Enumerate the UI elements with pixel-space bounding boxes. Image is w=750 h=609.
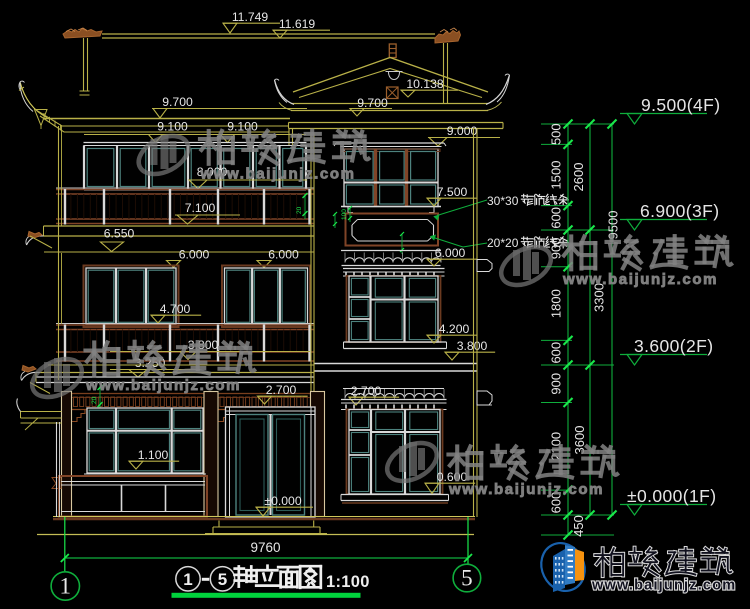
svg-text:5: 5 [218, 570, 227, 589]
svg-text:www.baijunjz.com: www.baijunjz.com [448, 481, 604, 498]
svg-text:30*30: 30*30 [487, 194, 519, 208]
svg-text:3.800: 3.800 [457, 339, 488, 353]
svg-text:20: 20 [91, 396, 98, 404]
svg-text:500: 500 [549, 123, 564, 145]
svg-text:4.200: 4.200 [439, 322, 470, 336]
svg-text:1: 1 [60, 574, 72, 599]
svg-text:www.baijunjz.com: www.baijunjz.com [85, 377, 241, 394]
svg-text:11.749: 11.749 [232, 10, 269, 24]
svg-text:9.000: 9.000 [447, 124, 478, 138]
svg-text:9.700: 9.700 [162, 95, 193, 109]
svg-text:www.baijunjz.com: www.baijunjz.com [200, 166, 356, 183]
svg-text:100: 100 [341, 209, 348, 220]
svg-text:5: 5 [461, 566, 473, 591]
svg-text:2.700: 2.700 [266, 383, 297, 397]
svg-text:9.700: 9.700 [357, 96, 388, 110]
svg-text:1800: 1800 [549, 289, 564, 318]
svg-text:2.700: 2.700 [351, 384, 382, 398]
svg-text:www.baijunjz.com: www.baijunjz.com [562, 271, 718, 288]
svg-text:±0.000(1F): ±0.000(1F) [627, 486, 716, 506]
svg-text:4.700: 4.700 [160, 302, 191, 316]
svg-text:900: 900 [549, 373, 564, 395]
svg-text:9.100: 9.100 [157, 120, 188, 134]
svg-text:600: 600 [549, 342, 564, 364]
svg-text:20*20: 20*20 [487, 236, 519, 250]
svg-text:450: 450 [571, 515, 586, 537]
svg-text:2600: 2600 [571, 163, 586, 192]
svg-text:7.500: 7.500 [437, 185, 468, 199]
svg-text:6.000: 6.000 [179, 248, 210, 262]
svg-text:9.500(4F): 9.500(4F) [641, 95, 720, 115]
svg-text:7.100: 7.100 [185, 201, 216, 215]
svg-text:6.000: 6.000 [268, 248, 299, 262]
svg-text:600: 600 [549, 207, 564, 229]
svg-text:9.100: 9.100 [227, 120, 258, 134]
svg-text:6.000: 6.000 [435, 246, 466, 260]
svg-text:10.138: 10.138 [406, 77, 443, 91]
svg-text:3.600(2F): 3.600(2F) [634, 336, 713, 356]
svg-text:20: 20 [296, 206, 303, 214]
svg-text:www.baijunjz.com: www.baijunjz.com [591, 578, 736, 594]
svg-text:1500: 1500 [549, 161, 564, 190]
svg-text:6.900(3F): 6.900(3F) [640, 201, 719, 221]
svg-text:1:100: 1:100 [326, 573, 370, 591]
svg-text:±0.000: ±0.000 [264, 494, 301, 508]
svg-text:6.550: 6.550 [104, 227, 135, 241]
svg-text:11.619: 11.619 [279, 17, 316, 31]
svg-text:1.100: 1.100 [138, 448, 169, 462]
svg-text:9760: 9760 [250, 540, 280, 555]
svg-text:1: 1 [183, 570, 192, 589]
